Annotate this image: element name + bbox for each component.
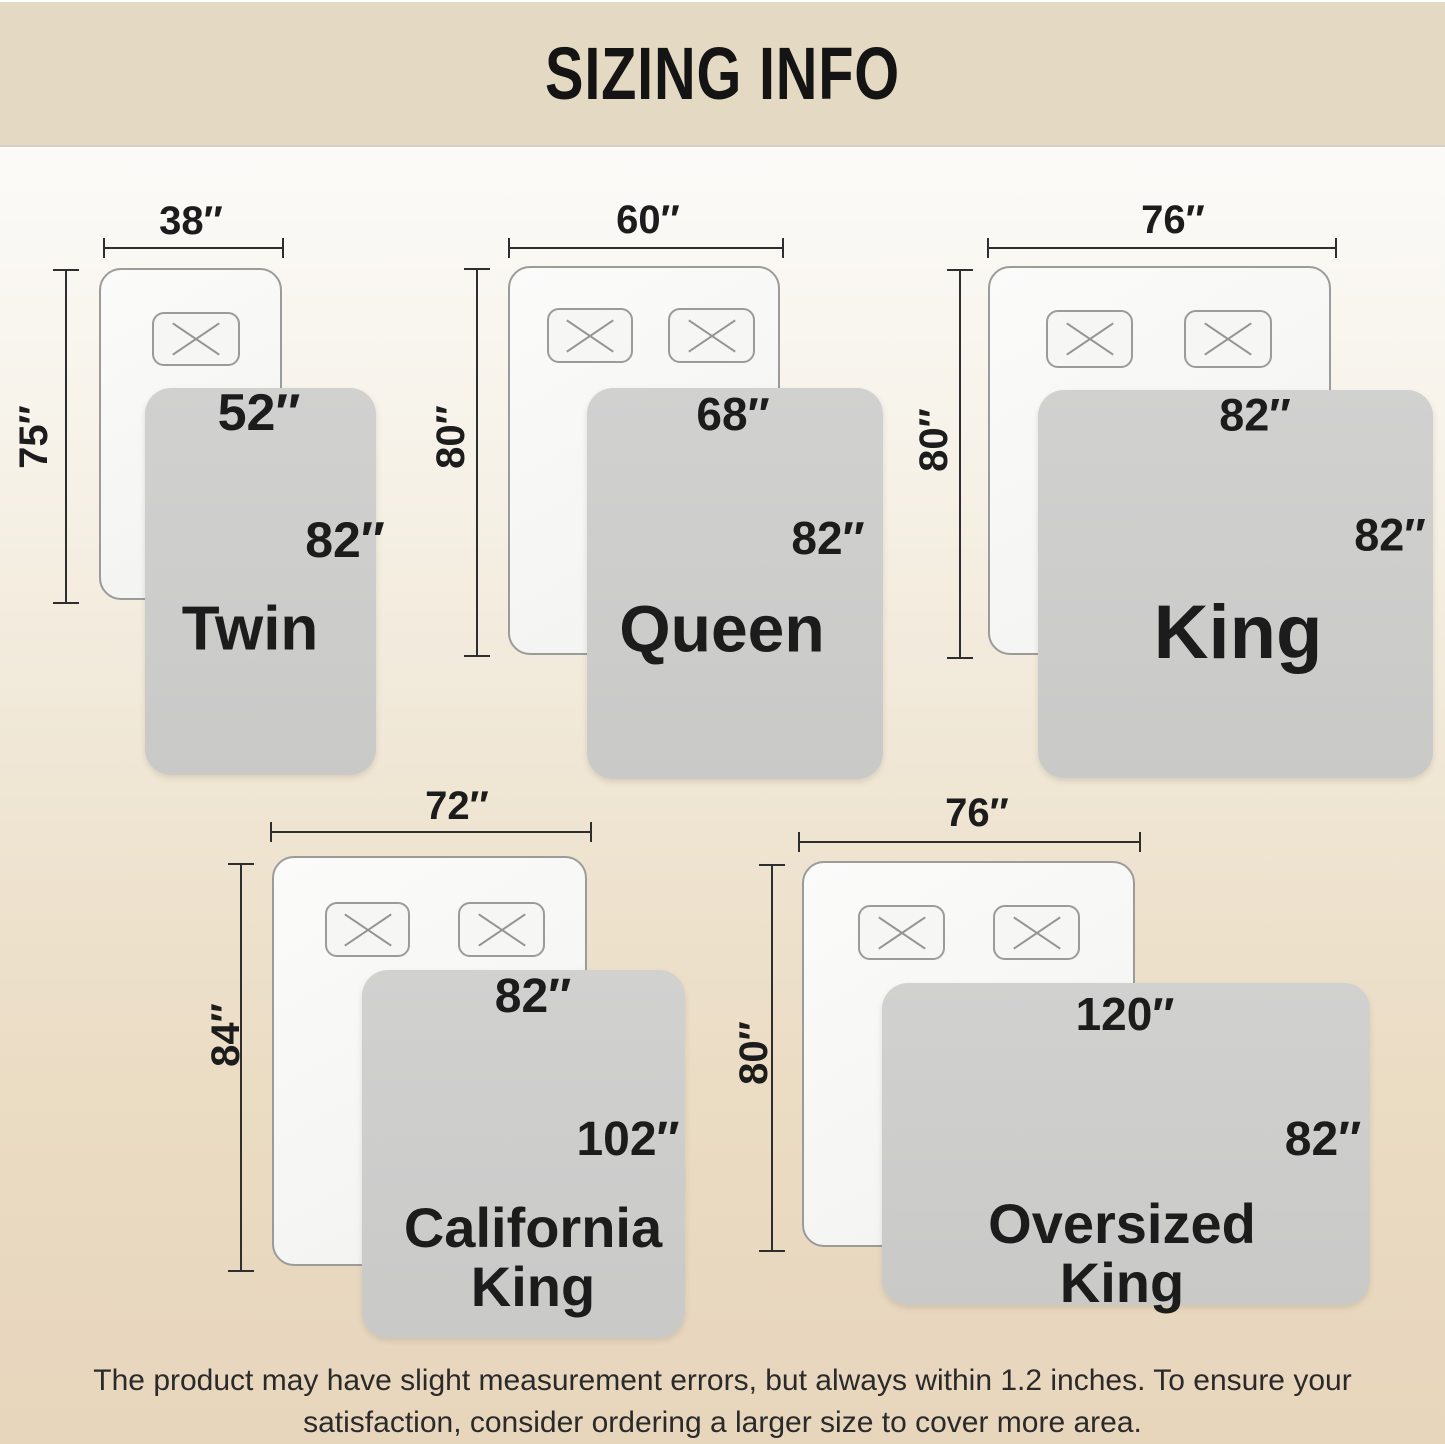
pillow-icon bbox=[1184, 310, 1272, 368]
blanket-illustration bbox=[882, 983, 1370, 1305]
width-dimension-line bbox=[987, 238, 1337, 258]
footer-note-line: satisfaction, consider ordering a larger… bbox=[13, 1402, 1433, 1444]
length-dimension-line bbox=[947, 269, 973, 659]
x-mark-icon bbox=[1186, 312, 1270, 366]
bed-length-label: 80″ bbox=[431, 405, 471, 469]
length-dimension-line bbox=[759, 864, 785, 1252]
blanket-illustration bbox=[1038, 390, 1433, 778]
sizing-info-infographic: SIZING INFO 38″ 75″ 52″ 82″ Twin 60″ 80″… bbox=[0, 0, 1445, 1444]
length-dimension-line bbox=[464, 268, 490, 657]
size-diagram-king: 76″ 80″ 82″ 82″ King bbox=[0, 0, 1445, 1444]
blanket-width-label: 120″ bbox=[1076, 991, 1175, 1037]
width-dimension-line bbox=[270, 822, 592, 842]
size-name-label: Twin bbox=[182, 596, 319, 661]
page-title: SIZING INFO bbox=[545, 31, 900, 116]
blanket-illustration bbox=[145, 388, 376, 775]
size-diagram-queen: 60″ 80″ 68″ 82″ Queen bbox=[0, 0, 1445, 1444]
bed-width-label: 60″ bbox=[616, 200, 680, 240]
size-diagram-california-king: 72″ 84″ 82″ 102″ California King bbox=[0, 0, 1445, 1444]
x-mark-icon bbox=[549, 310, 631, 361]
bed-length-label: 84″ bbox=[206, 1003, 246, 1067]
bed-width-label: 38″ bbox=[159, 201, 223, 241]
blanket-width-label: 82″ bbox=[1219, 393, 1291, 438]
width-dimension-line bbox=[508, 238, 784, 258]
size-name-label: Queen bbox=[619, 594, 824, 663]
blanket-width-label: 82″ bbox=[495, 973, 571, 1021]
blanket-width-label: 68″ bbox=[696, 391, 769, 437]
pillow-icon bbox=[858, 905, 945, 960]
size-name-label: King bbox=[1154, 593, 1323, 673]
blanket-illustration bbox=[362, 970, 685, 1338]
pillow-icon bbox=[458, 902, 545, 957]
length-dimension-line bbox=[228, 863, 254, 1272]
blanket-length-label: 82″ bbox=[305, 515, 385, 565]
pillow-icon bbox=[1046, 310, 1133, 368]
x-mark-icon bbox=[1048, 312, 1131, 366]
mattress-illustration bbox=[508, 266, 780, 655]
mattress-illustration bbox=[802, 861, 1135, 1247]
size-name-label: Oversized King bbox=[988, 1195, 1256, 1313]
bed-width-label: 76″ bbox=[945, 793, 1009, 833]
size-name-label: California King bbox=[404, 1199, 662, 1317]
blanket-length-label: 82″ bbox=[1285, 1116, 1361, 1164]
pillow-icon bbox=[993, 905, 1080, 960]
size-diagram-oversized-king: 76″ 80″ 120″ 82″ Oversized King bbox=[0, 0, 1445, 1444]
x-mark-icon bbox=[327, 904, 408, 955]
footer-note-line: The product may have slight measurement … bbox=[13, 1360, 1433, 1402]
x-mark-icon bbox=[860, 907, 943, 958]
bed-width-label: 76″ bbox=[1141, 200, 1205, 240]
header-banner: SIZING INFO bbox=[0, 2, 1445, 147]
blanket-length-label: 82″ bbox=[791, 515, 864, 561]
x-mark-icon bbox=[154, 314, 238, 364]
pillow-icon bbox=[668, 308, 755, 363]
blanket-length-label: 102″ bbox=[576, 1116, 679, 1164]
mattress-illustration bbox=[99, 268, 282, 600]
length-dimension-line bbox=[53, 269, 79, 604]
pillow-icon bbox=[547, 308, 633, 363]
x-mark-icon bbox=[995, 907, 1078, 958]
bed-length-label: 80″ bbox=[734, 1021, 774, 1085]
pillow-icon bbox=[152, 312, 240, 366]
blanket-width-label: 52″ bbox=[218, 387, 301, 439]
mattress-illustration bbox=[988, 266, 1331, 655]
bed-width-label: 72″ bbox=[425, 786, 489, 826]
pillow-icon bbox=[325, 902, 410, 957]
size-diagram-twin: 38″ 75″ 52″ 82″ Twin bbox=[0, 0, 1445, 1444]
x-mark-icon bbox=[460, 904, 543, 955]
width-dimension-line bbox=[103, 238, 284, 258]
width-dimension-line bbox=[798, 832, 1141, 852]
blanket-illustration bbox=[587, 388, 883, 779]
bed-length-label: 75″ bbox=[14, 405, 54, 469]
x-mark-icon bbox=[670, 310, 753, 361]
blanket-length-label: 82″ bbox=[1354, 513, 1426, 558]
mattress-illustration bbox=[272, 856, 587, 1266]
bed-length-label: 80″ bbox=[914, 408, 954, 472]
footer-note: The product may have slight measurement … bbox=[13, 1360, 1433, 1444]
